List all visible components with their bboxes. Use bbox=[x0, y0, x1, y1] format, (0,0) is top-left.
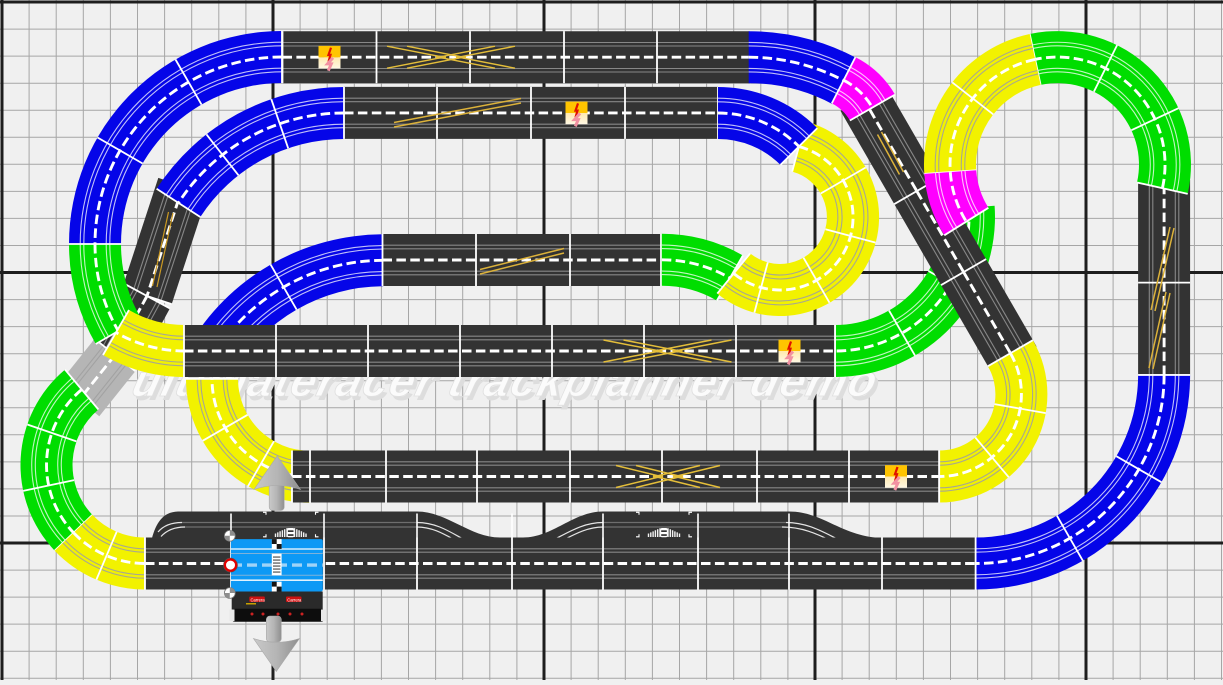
svg-text:Carrera: Carrera bbox=[251, 597, 266, 602]
svg-text:Carrera: Carrera bbox=[287, 597, 302, 602]
